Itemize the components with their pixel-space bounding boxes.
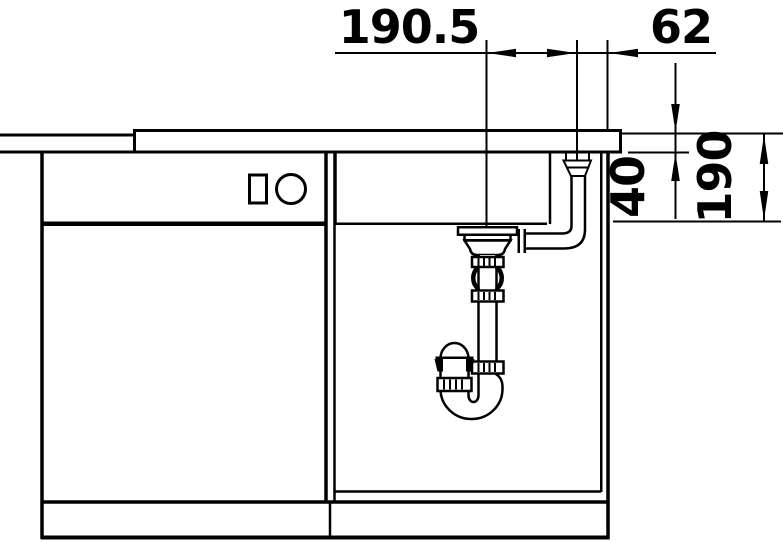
arrowhead-right — [547, 49, 576, 57]
right-cabinet — [335, 152, 609, 539]
riser-dome-top — [441, 343, 469, 359]
cabinet-base — [41, 502, 610, 538]
overflow-pipe-outer-edge — [525, 176, 585, 249]
drawer-handle — [250, 175, 267, 203]
riser-tab-left — [435, 359, 444, 372]
union-nut-1 — [472, 257, 504, 267]
arrowhead-190-up — [760, 135, 769, 164]
sink-rim-profile — [135, 131, 621, 153]
drain-strainer — [458, 227, 517, 255]
dimension-label-drain-offset: 190.5 — [339, 0, 480, 54]
arrowhead-190-down — [760, 191, 769, 220]
trap-outlet-riser — [435, 343, 475, 379]
union-nut-4 — [438, 378, 472, 391]
sink-bowl — [334, 152, 550, 224]
nut-body — [472, 291, 504, 302]
arrowhead-40-up — [671, 153, 680, 181]
nut-body — [438, 378, 472, 391]
strainer-cup — [465, 241, 511, 256]
p-trap — [435, 255, 504, 419]
drawer-knob — [277, 175, 306, 204]
drawing-canvas: 190.5 62 40 190 — [0, 0, 783, 542]
worktop — [0, 131, 621, 153]
sink-installation-drawing: 190.5 62 40 190 — [0, 0, 783, 542]
nut-body — [472, 257, 504, 267]
nut-body — [472, 362, 504, 374]
union-nut-2 — [472, 291, 504, 302]
dimensions: 190.5 62 40 190 — [335, 0, 783, 227]
left-cabinet — [42, 152, 326, 539]
dimension-label-overflow-side: 62 — [650, 0, 712, 54]
union-nut-3 — [472, 362, 504, 374]
arrowhead-40-down — [671, 104, 680, 132]
arrowhead-62-left — [609, 49, 638, 57]
overflow-pipe — [519, 152, 591, 253]
arrowhead-left — [487, 49, 516, 57]
trap-pipe-fill — [480, 255, 496, 365]
dimension-label-worktop-thickness: 40 — [601, 156, 655, 218]
dimension-label-bowl-depth: 190 — [688, 130, 742, 223]
